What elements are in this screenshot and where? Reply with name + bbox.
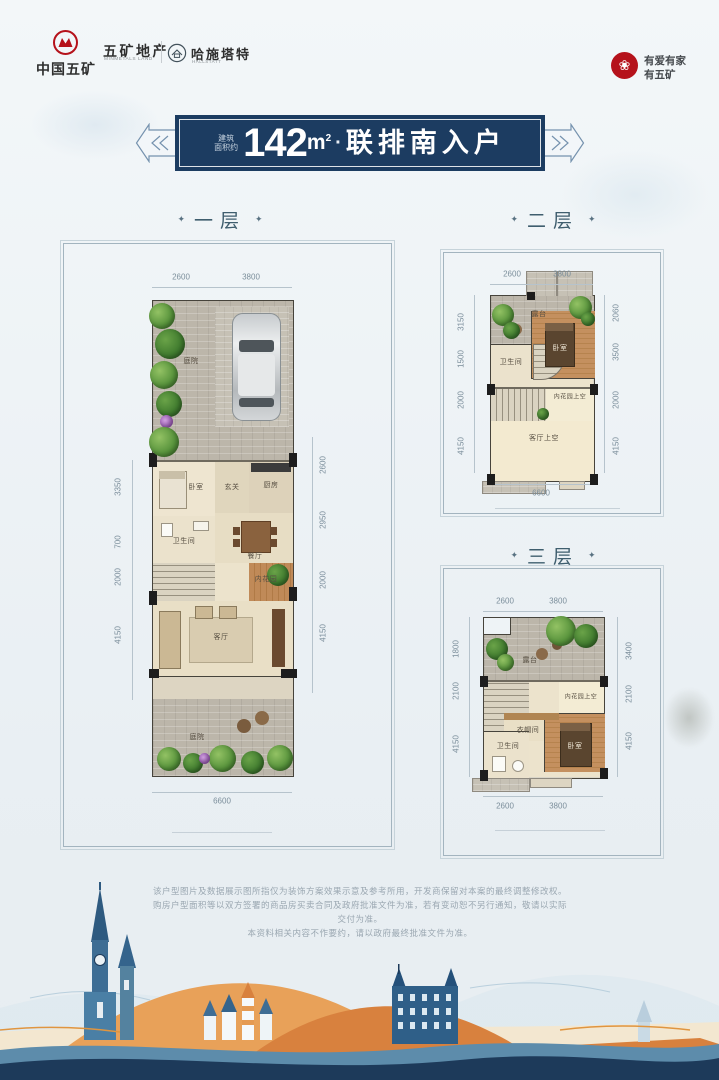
slogan-line1: 有爱有家 [644,54,686,68]
dim-label: 2600 [496,597,514,606]
sofa [159,611,181,669]
tree-icon [155,329,185,359]
tree-icon [156,391,182,417]
dim-label: 3800 [549,597,567,606]
brand-hallstatt-sub: HALLSTATT [192,59,221,64]
patio-chair [255,711,269,725]
banner-prefix-line2: 面积约 [214,143,238,152]
smudge-decor [664,688,714,748]
header-slogan: 有爱有家 有五矿 [644,54,686,82]
floor1-title: ✦ 一层 ✦ [177,206,262,233]
dim-label: 3800 [549,802,567,811]
dim-line [469,617,470,777]
patio-chair [237,719,251,733]
wall-segment [600,676,608,687]
room-label-cloak: 衣帽间 [517,725,540,735]
kitchen-counter [251,463,291,472]
tree-icon [503,322,520,339]
banner-unit-sup: 2 [326,133,332,144]
room-label-bedroom: 卧室 [189,482,204,492]
tree-icon [241,751,264,774]
floor3-notch [484,618,511,635]
floor3-bath [484,731,529,779]
dim-line [617,617,618,777]
dim-label: 2100 [452,682,461,700]
terrace-table [536,648,548,660]
tree-icon [149,427,179,457]
room-label-garden-void: 内花园上空 [565,692,598,701]
dim-label: 2000 [457,391,466,409]
armchair [219,606,237,619]
wall-segment [281,669,297,678]
banner-title: 联排南入户 [346,130,506,157]
toilet [161,523,173,537]
wall-segment [289,453,297,467]
hallstatt-seal-icon [167,43,187,63]
wall-segment [600,768,608,779]
tree-icon [267,745,293,771]
banner-unit-base: m [307,131,326,154]
dim-label: 2000 [612,391,621,409]
ornament-icon: ✦ [588,550,596,561]
floor1-plan: 庭院 卧室 玄关 厨房 卫生间 餐厅 内花园 [152,300,294,777]
room-label-bath: 卫生间 [173,536,196,546]
wall-segment [590,384,598,395]
tree-icon [209,745,236,772]
sink [193,521,209,531]
dim-line [312,437,313,693]
ornament-icon: ✦ [510,214,518,225]
dim-label: 2060 [612,304,621,322]
dim-label: 4150 [625,732,634,750]
slogan-line2: 有五矿 [644,68,686,82]
dim-label: 1800 [452,640,461,658]
room-label-dining: 餐厅 [248,551,263,561]
dim-label: 4150 [319,624,328,642]
tree-icon [574,624,598,648]
dim-line [483,611,603,612]
room-label-bath: 卫生间 [497,741,520,751]
dim-label: 3150 [457,313,466,331]
scale-bar [495,830,605,831]
floor3-title: ✦ 三层 ✦ [510,542,595,569]
floor3-plan: 露台 内花园上空 衣帽间 卧室 卫生间 [483,617,605,779]
bed-pillow [545,323,573,331]
car-top-view [232,313,281,421]
room-label-garden-void: 内花园上空 [554,392,587,401]
dim-label: 2950 [319,511,328,529]
brand-china-minmetals: 中国五矿 [36,59,96,79]
banner-area-number: 142 [243,123,307,163]
toilet [512,760,524,772]
chair [233,527,240,535]
poster-page: 中国五矿 五矿地产 MINMETALS LAND 哈施塔特 HALLSTATT … [0,0,719,1080]
room-label-living-void: 客厅上空 [529,433,559,443]
bed-pillow [159,471,185,479]
dim-label: 3800 [242,273,260,282]
banner-unit: m2 [307,131,331,155]
room-label-garden: 内花园 [255,574,278,584]
dim-label: 2600 [319,456,328,474]
brand-minmetals-land-sub: MINMETALS LAND [104,57,153,62]
scale-bar [495,508,620,509]
wardrobe [504,713,559,720]
room-label-courtyard-top: 庭院 [184,356,199,366]
tree-icon [150,361,178,389]
banner-ribbon-left-icon [135,123,179,163]
dim-line [604,295,605,473]
dim-line [152,792,292,793]
room-label-bath: 卫生间 [500,357,523,367]
dim-label: 6600 [532,489,550,498]
wall-segment [480,676,488,687]
ornament-icon: ✦ [510,550,518,561]
room-label-bedroom: 卧室 [553,343,568,353]
wall-segment [149,669,159,678]
banner-box: 建筑 面积约 142 m2 · 联排南入户 [175,115,545,171]
room-label-courtyard-bottom: 庭院 [190,732,205,742]
tree-icon [537,408,549,420]
dim-label: 3400 [625,642,634,660]
banner-dot: · [335,132,342,155]
dining-table [241,521,271,553]
dim-line [490,484,593,485]
dim-label: 2600 [172,273,190,282]
wall-segment [487,384,495,395]
area-banner: 建筑 面积约 142 m2 · 联排南入户 [135,114,585,172]
love-home-icon: ❀ [611,52,638,79]
footer-illustration [0,880,719,1080]
chair [270,539,277,547]
floor1-stairs [153,563,215,601]
wall-segment [590,474,598,485]
dim-line [152,287,292,288]
ornament-icon: ✦ [177,214,185,225]
tub [492,756,506,772]
wall-segment [289,587,297,601]
dim-label: 4150 [457,437,466,455]
floor2-title: ✦ 二层 ✦ [510,206,595,233]
floor1-patio [153,676,293,700]
tree-icon [546,616,576,646]
room-label-foyer: 玄关 [225,482,240,492]
dim-label: 2600 [496,802,514,811]
room-label-living: 客厅 [214,632,229,642]
tree-icon [581,312,595,326]
floor2-title-text: 二层 [527,206,579,233]
wall-line [491,387,594,389]
armchair [195,606,213,619]
dim-line [490,284,593,285]
dim-line [474,295,475,473]
car-roof [238,354,275,396]
banner-ribbon-right-icon [541,123,585,163]
tree-icon [149,303,175,329]
header-divider [161,41,162,63]
dim-label: 6600 [213,797,231,806]
dim-label: 3800 [553,270,571,279]
wall-segment [149,591,157,605]
wall-segment [527,292,535,300]
minmetals-emblem-icon [52,29,79,56]
chair [270,527,277,535]
room-label-kitchen: 厨房 [264,480,279,490]
dim-label: 2000 [319,571,328,589]
tree-icon [157,747,181,771]
dim-label: 2100 [625,685,634,703]
dim-label: 4150 [452,735,461,753]
dim-label: 3350 [114,478,123,496]
room-label-terrace: 露台 [523,655,538,665]
dim-label: 2000 [114,568,123,586]
dim-label: 4150 [114,626,123,644]
car-windshield [239,340,274,352]
tv-cabinet [272,609,285,667]
floor3-title-text: 三层 [527,542,579,569]
dim-line [483,796,603,797]
dim-label: 1500 [457,350,466,368]
dim-label: 4150 [612,437,621,455]
tree-icon [497,654,514,671]
room-label-terrace: 露台 [532,309,547,319]
floor2-living-void [491,421,594,481]
car-rear-window [239,398,274,407]
dim-line [132,460,133,700]
wall-line [484,680,604,682]
ornament-icon: ✦ [588,214,596,225]
floor3-step [530,778,572,788]
banner-prefix-line1: 建筑 [214,134,238,143]
dim-label: 3500 [612,343,621,361]
wall-segment [480,770,488,781]
room-label-bedroom: 卧室 [568,741,583,751]
bed-pillow [560,723,590,731]
dim-label: 2600 [503,270,521,279]
love-flower-glyph: ❀ [619,57,631,74]
tree-icon [199,753,210,764]
floor1-title-text: 一层 [194,206,246,233]
wall-line [153,460,293,462]
wall-segment [487,474,495,485]
chair [233,539,240,547]
scale-bar [172,832,272,833]
banner-prefix: 建筑 面积约 [214,134,238,152]
floor2-step [559,481,585,490]
dim-label: 700 [114,535,123,548]
floor2-plan: 露台 卧室 卫生间 内花园上空 客厅上空 [490,295,595,482]
ornament-icon: ✦ [255,214,263,225]
